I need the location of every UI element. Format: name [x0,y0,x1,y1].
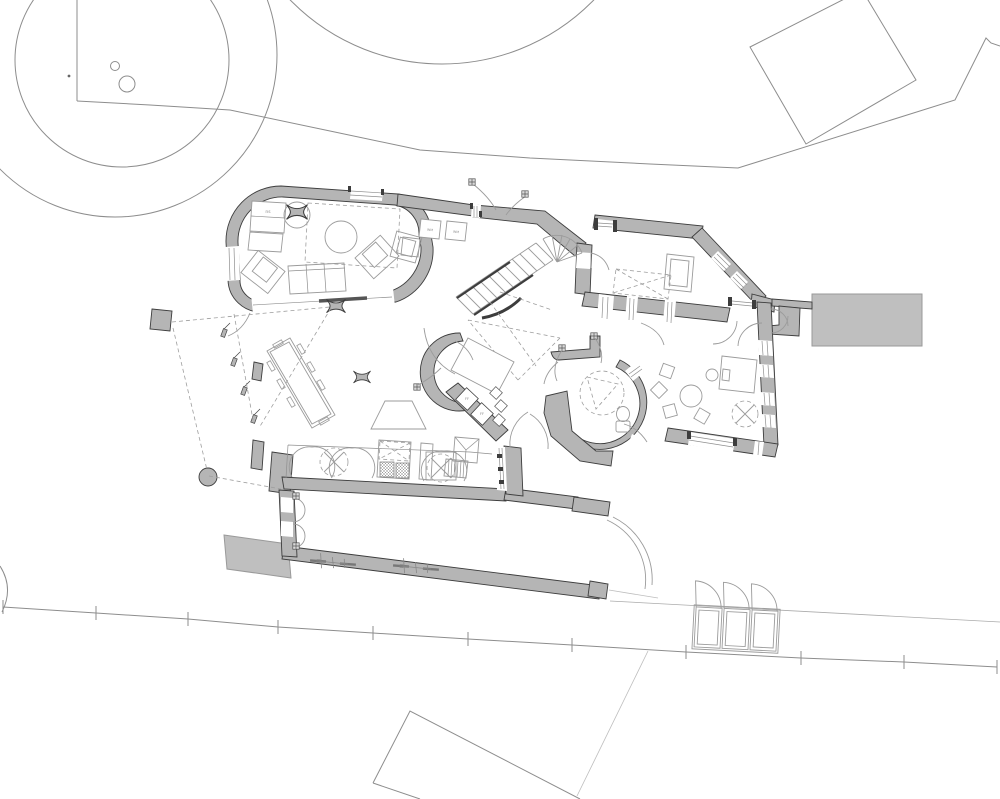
neighbor-building-south [373,711,580,799]
washer-boxes: WM WM [401,219,467,257]
side-table-label: ns [265,210,271,215]
garden-wall-piece-a [252,362,263,381]
desk [706,356,757,393]
chair [659,363,674,378]
carport-se-jog [588,581,608,599]
downpipe-post [469,179,475,185]
path-edge-line [609,590,658,598]
bedroom-ne-window-wall [692,228,766,305]
tree-arc-left-edge [0,566,8,612]
dining-table [267,338,335,428]
small-site-circle-2 [119,76,135,92]
stove-appliance-block [377,440,411,479]
study-double-door [713,321,762,346]
entry-bridge-slab [812,294,922,346]
fence-ticks [3,600,997,674]
pergola-post [231,352,240,366]
bin-door-swing [722,582,750,609]
bedroom-door [591,253,609,270]
round-coffee-table [325,221,357,253]
pergola-post [251,409,260,423]
niche [495,400,508,413]
downpipe-post [522,191,528,197]
retaining-wall-line [610,601,1000,622]
armchair [241,251,285,294]
carport-door-jamb [572,497,610,516]
tree-canopy-inner-circle [15,0,229,167]
x-column [354,371,371,383]
bed-dashed [613,269,671,299]
tree-canopy-top-arc [230,0,654,64]
washer-b-label: WM [453,230,459,234]
shelf-b-label: FF [480,412,484,416]
stair-head-wall [473,205,586,256]
bin-box-1 [692,581,723,648]
downpipe-post [591,333,597,339]
furniture-layer: ns WM WM [241,201,758,576]
bin-door-swing [750,584,778,611]
shelf-a-label: FF [465,397,469,401]
kitchen-hall-double-door [510,412,548,449]
sink-unit [453,437,479,463]
building-walls [150,186,812,599]
rooflight-trapezoid [371,401,426,429]
living-rug-dashed [305,203,400,268]
survey-dot [68,75,71,78]
bin-box-2 [720,582,751,649]
tree-canopy-outer-circle [0,0,277,217]
round-room-dashed-circle [580,371,624,415]
study-north-door [641,323,664,345]
stair-treads [456,243,553,314]
side-table-ns: ns [248,201,286,252]
toilet-fixture [616,407,630,433]
carport-east-doors [607,517,652,589]
wardrobe [664,254,694,292]
downpipe-post [293,493,299,499]
lounge-table [390,231,422,263]
garden-wall-piece-b [251,440,264,470]
bin-door-swing [694,581,722,608]
bin-storage-group [692,581,781,653]
site-context [0,0,1000,799]
small-site-circle [111,62,120,71]
neighbor-building-ne [750,0,916,144]
washer-a-label: WM [427,228,433,232]
fence-line [3,607,997,667]
carport-south-wall [282,546,601,599]
faint-site-diagonal [577,651,648,796]
bedroom-west-wall [575,243,592,295]
garden-square-post [150,309,172,331]
floor-plan-canvas: ns WM WM [0,0,1000,799]
stair-curved-wall [482,298,521,318]
pedestal-table-dashed [732,401,758,427]
round-table [680,385,702,407]
chair [651,382,668,399]
chair [694,408,710,424]
sofa [288,263,346,294]
hall-hook-door [544,362,558,384]
x-column [287,205,308,220]
downpipe-post [293,543,299,549]
round-room-sw-wall [544,391,613,466]
terrain-boundary-line [77,38,1000,168]
round-room-dashed-triangle [587,377,618,409]
chair [663,404,678,419]
desk-chair [706,369,718,381]
garden-round-post [199,468,217,486]
south-main-wall [282,477,508,501]
north-wall-strip [397,194,474,216]
bin-box-3 [748,584,779,651]
floor-plan-page: ns WM WM [0,0,1000,799]
